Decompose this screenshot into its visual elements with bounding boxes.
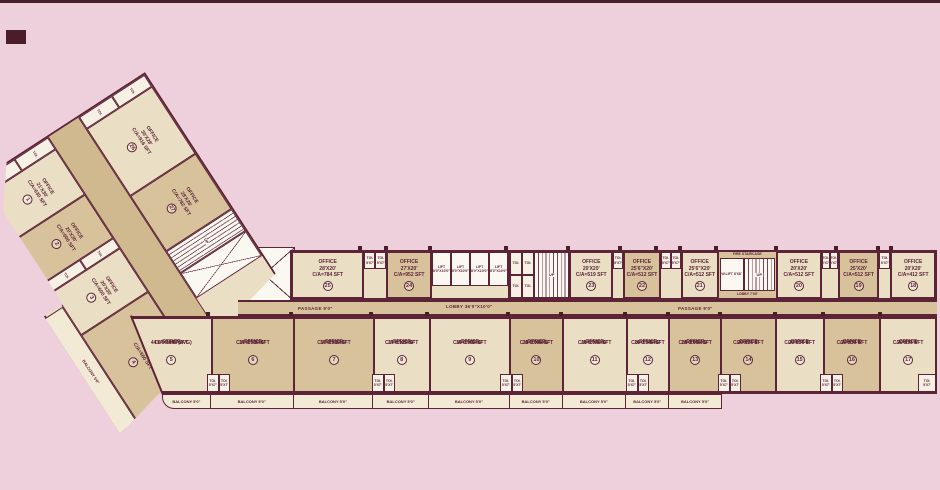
office-area: C/A=412 SFT (898, 272, 929, 279)
balcony-label: BALCONY 5'0" (633, 399, 661, 404)
office-area: C/A=1003 SFT (453, 340, 487, 347)
main-staircase: UP (534, 252, 570, 298)
balcony-segment: BALCONY 5'0" (510, 395, 563, 408)
toilet-room: TOI. (522, 275, 534, 298)
balcony-label: BALCONY 5'0" (387, 399, 415, 404)
lift-room: LIFT 8'0"X10'0" (451, 252, 470, 286)
office-area: C/A=784 SFT (312, 272, 343, 279)
toilet-room: TOI. (522, 252, 534, 275)
office-21: OFFICE 25'6"X20' C/A=512 SFT 21 (682, 252, 718, 298)
toilet-room: TOI. 5'X7' (718, 374, 730, 392)
toilet-room: TOI. 5'X7' (918, 374, 936, 392)
lift-room: LIFT 8'0"X10'0" (489, 252, 508, 286)
balcony-label: BALCONY 5'0" (238, 399, 266, 404)
office-13: OFFICE 25'0"X34'6" C/A=1046 SFT 13 (669, 318, 721, 392)
balcony-segment: BALCONY 5'0" (563, 395, 627, 408)
office-area: C/A=1046 SFT (578, 340, 612, 347)
balcony-label: BALCONY 5'0" (172, 399, 200, 404)
toilet-pair: TOI. 5'X7' TOI. 5'X7' (821, 252, 839, 298)
office-number: 6 (248, 355, 258, 365)
toilet-pair: TOI. 5'X7' TOI. 5'X7' (207, 374, 230, 392)
office-20: OFFICE 20'X20' C/A=512 SFT 20 (777, 252, 821, 298)
office-number: 17 (903, 355, 913, 365)
toilet-grid: TOI. TOI. TOI. TOI. (510, 252, 534, 298)
main-staircase-block: TOI. TOI. TOI. TOI. UP (509, 252, 571, 298)
fire-staircase-mid: W.LIFT 8'X8' UP (720, 258, 776, 291)
toilet-pair: TOI. 5'X7' TOI. 5'X7' (363, 252, 387, 298)
office-area: C/A=512 SFT (843, 272, 874, 279)
toilet-room: TOI. 5'X7' (820, 374, 832, 392)
office-area: C/A=677 SFT (733, 340, 764, 347)
toilet-cell: TOI. 5'X7' (612, 252, 624, 298)
lift-size: 8'0"X10'0" (433, 269, 450, 273)
office-number: 9 (465, 355, 475, 365)
lift-size: 8'0"X10'0" (471, 269, 488, 273)
toilet-room: TOI. 5'X7' (500, 374, 512, 392)
office-number: 24 (404, 281, 414, 291)
stair-up-label: UP (202, 237, 209, 246)
office-area: C/A=1046 SFT (520, 340, 554, 347)
office-area: C/A=1046 SFT (631, 340, 665, 347)
office-11: OFFICE 25'6"X34'6" C/A=1046 SFT 11 (563, 318, 627, 392)
office-number: 15 (795, 355, 805, 365)
balcony-label: BALCONY 5'0" (319, 399, 347, 404)
office-area: C/A=519 SFT (576, 272, 607, 279)
office-number: 21 (695, 281, 705, 291)
toilet-room: TOI. 5'X7' (830, 252, 838, 269)
balcony-segment: BALCONY 5'0" (211, 395, 294, 408)
office-23: OFFICE 20'X20' C/A=519 SFT 23 (570, 252, 612, 298)
office-number: 19 (854, 281, 864, 291)
toilet-room: TOI. 5'X7' (512, 374, 524, 392)
office-area: C/A=677 SFT (837, 340, 868, 347)
balcony-label: BALCONY 5'0" (81, 359, 101, 385)
toilet-room: TOI. (510, 275, 522, 298)
toilet-room: TOI. 5'X7' (879, 252, 890, 269)
office-area: C/A=512 SFT (627, 272, 658, 279)
balcony-label: BALCONY 5'0" (681, 399, 709, 404)
fire-staircase: UP (744, 258, 776, 291)
balcony-label: BALCONY 5'0" (580, 399, 608, 404)
office-number: 12 (643, 355, 653, 365)
toilet-room: TOI. 5'X7' (364, 252, 375, 269)
floor-plan: TOI. TOI. OFFICE 30'X28' C/A=916 SFT 26 … (0, 0, 940, 490)
wall-posts (0, 0, 4, 4)
balcony-label: BALCONY 5'0" (522, 399, 550, 404)
balcony-segment: BALCONY 5'0" (429, 395, 510, 408)
toilet-room: TOI. (510, 252, 522, 275)
top-border-line (0, 0, 940, 3)
toilet-pair: TOI. 5'X7' TOI. 5'X7' (660, 252, 682, 298)
w-lift-room: W.LIFT 8'X8' (720, 258, 744, 291)
toilet-room: TOI. 5'X7' (372, 374, 384, 392)
toilet-room: TOI. 5'X7' (822, 252, 830, 269)
office-7: OFFICE 37'9"X34'6" C/A=1036 SFT 7 (294, 318, 374, 392)
office-area: C/A=677 SFT (893, 340, 924, 347)
toilet-pair: TOI. 5'X7' TOI. 5'X7' (626, 374, 649, 392)
office-area: C/A=1036 SFT (317, 340, 351, 347)
toilet-room: TOI. 5'X7' (384, 374, 396, 392)
office-number: 23 (586, 281, 596, 291)
toilet-room: TOI. 5'X7' (613, 252, 623, 269)
office-area: C/A=1126 SFT (385, 340, 418, 347)
toilet-room: TOI. 5'X7' (219, 374, 231, 392)
lift-size: 8'0"X10'0" (452, 269, 469, 273)
office-area: C/A=512 SFT (684, 272, 715, 279)
office-number: 13 (690, 355, 700, 365)
office-15: OFFICE 20'X34'6" C/A=677 SFT 15 (776, 318, 824, 392)
office-25: OFFICE 28'X20' C/A=784 SFT 25 (292, 252, 363, 298)
toilet-pair: TOI. 5'X7' TOI. 5'X7' (372, 374, 395, 392)
office-area: C/A=1036 SFT (236, 340, 270, 347)
balcony-segment: BALCONY 5'0" (626, 395, 669, 408)
office-number: 11 (590, 355, 600, 365)
corner-mark (6, 30, 26, 44)
toilet-room: TOI. 5'X7' (626, 374, 638, 392)
passage-label: PASSAGE 9'0" (298, 306, 333, 311)
office-area: C/A=677 SFT (784, 340, 815, 347)
office-24: OFFICE 27'X20' C/A=952 SFT 24 (387, 252, 431, 298)
balcony-segment: BALCONY 5'0" (294, 395, 374, 408)
balcony-segment: BALCONY 5'0" (669, 395, 721, 408)
office-19: OFFICE 25'X20' C/A=512 SFT 19 (839, 252, 879, 298)
office-number: 8 (397, 355, 407, 365)
toilet-pair: TOI. 5'X7' TOI. 5'X7' (718, 374, 741, 392)
office-number: 16 (847, 355, 857, 365)
office-area: C/A=1508 SFT (155, 340, 189, 347)
office-number: 25 (323, 281, 333, 291)
toilet-room: TOI. 5'X7' (671, 252, 681, 269)
office-area: C/A=512 SFT (784, 272, 815, 279)
toilet-room: TOI. 5'X7' (375, 252, 386, 269)
office-area: C/A=1046 SFT (678, 340, 712, 347)
fire-lobby-label: LOBBY 7'X9' (719, 292, 777, 298)
bottom-office-row: OFFICE 44'6"X34'6"(AVG) C/A=1508 SFT 5 O… (130, 316, 937, 394)
office-number: 5 (166, 355, 176, 365)
office-number: 20 (794, 281, 804, 291)
passage-label: PASSAGE 9'0" (678, 306, 713, 311)
lobby-label: LOBBY 36'0"X10'0" (446, 304, 492, 309)
toilet-cell: TOI. 5'X7' (878, 252, 891, 298)
toilet-room: TOI. 5'X7' (207, 374, 219, 392)
office-18: OFFICE 20'X20' C/A=412 SFT 18 (891, 252, 935, 298)
office-number: 22 (637, 281, 647, 291)
lift-room: LIFT 8'0"X10'0" (432, 252, 451, 286)
stair-up-label: UP (548, 273, 556, 277)
balcony-strip: BALCONY 5'0" BALCONY 5'0" BALCONY 5'0" B… (162, 394, 722, 409)
lift-block: LIFT 8'0"X10'0" LIFT 8'0"X10'0" LIFT 8'0… (431, 252, 509, 298)
office-22: OFFICE 25'6"X20' C/A=512 SFT 22 (624, 252, 660, 298)
office-number: 18 (908, 281, 918, 291)
toilet-room: TOI. 5'X7' (638, 374, 650, 392)
toilet-room: TOI. 5'X7' (661, 252, 671, 269)
balcony-segment: BALCONY 5'0" (163, 395, 211, 408)
office-number: 14 (743, 355, 753, 365)
office-9: OFFICE 30'0"X34'6" C/A=1003 SFT 9 (430, 318, 511, 392)
office-number: 7 (329, 355, 339, 365)
lift-size: 8'0"X10'0" (490, 269, 507, 273)
office-area: C/A=952 SFT (394, 272, 425, 279)
balcony-label: BALCONY 5'0" (455, 399, 483, 404)
lift-room: LIFT 8'0"X10'0" (470, 252, 489, 286)
toilet-room: TOI. 5'X7' (832, 374, 844, 392)
toilet-pair: TOI. 5'X7' TOI. 5'X7' (820, 374, 843, 392)
balcony-segment: BALCONY 5'0" (373, 395, 429, 408)
toilet-room: TOI. 5'X7' (730, 374, 742, 392)
toilet-cell: TOI. 5'X7' (918, 374, 936, 392)
toilet-pair: TOI. 5'X7' TOI. 5'X7' (500, 374, 523, 392)
stair-up-label: UP (756, 273, 764, 277)
office-number: 10 (531, 355, 541, 365)
top-office-row: OFFICE 28'X20' C/A=784 SFT 25 TOI. 5'X7'… (290, 250, 937, 300)
passage-corridor: PASSAGE 9'0" LOBBY 36'0"X10'0" PASSAGE 9… (238, 300, 937, 316)
fire-staircase-label: FIRE STAIRCASE (719, 252, 777, 257)
fire-staircase-block: FIRE STAIRCASE W.LIFT 8'X8' UP LOBBY 7'X… (718, 252, 778, 298)
